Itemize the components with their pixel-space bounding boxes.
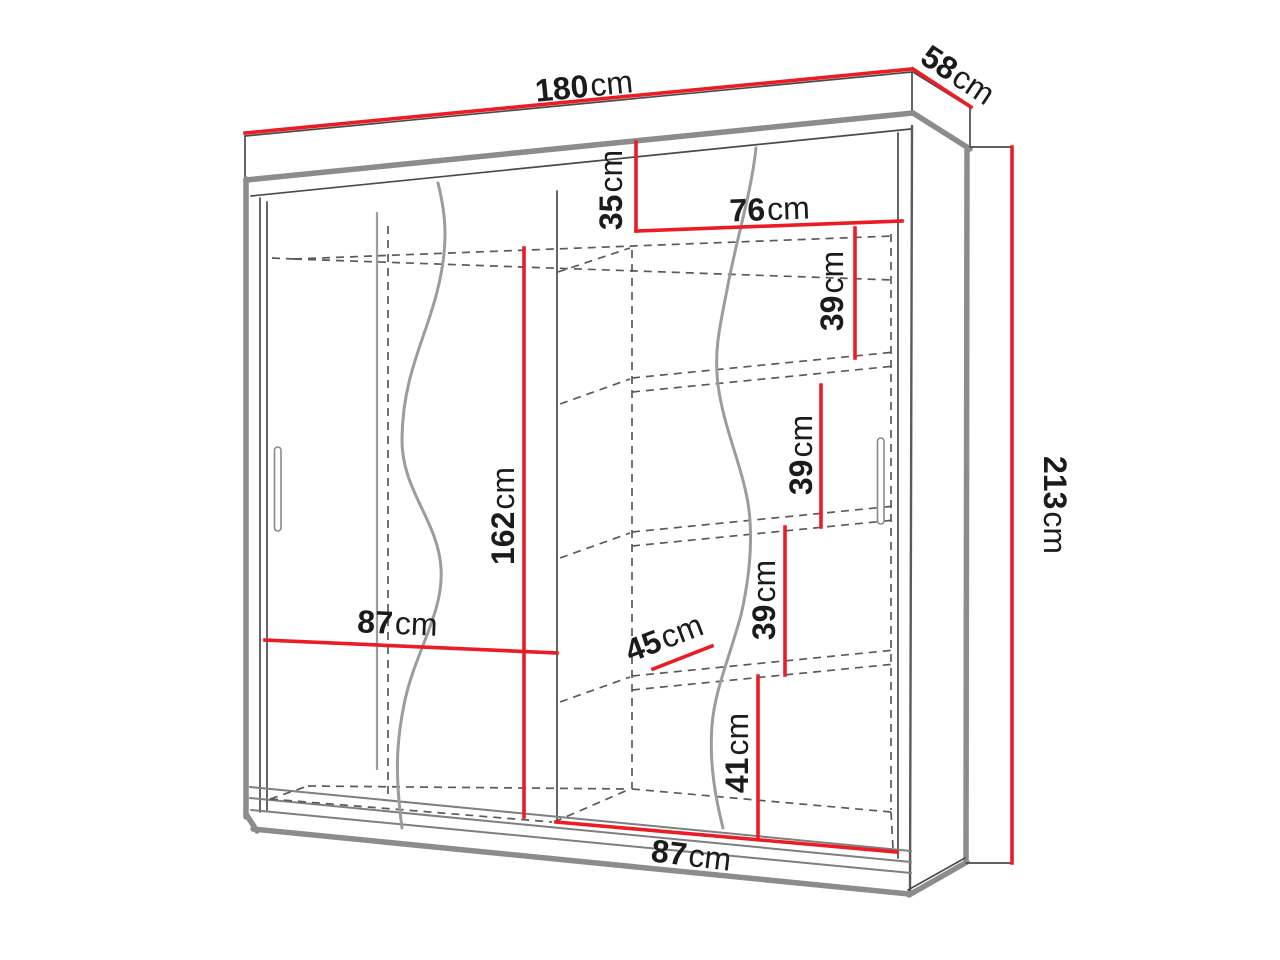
shelf3-depth-diagonal xyxy=(560,677,630,702)
dim-label-shelf-width: 76cm xyxy=(729,189,811,228)
bottom-right-edge xyxy=(908,858,965,890)
dim-label-door-left: 87cm xyxy=(357,603,439,642)
right-back-edge-shadow xyxy=(966,149,967,861)
dim-label-shelf-gap-3: 39cm xyxy=(746,560,782,640)
top-shelf-left-stub xyxy=(272,258,294,259)
shelf2-depth-diagonal xyxy=(560,533,630,558)
floor-depth-right xyxy=(891,812,893,848)
dim-label-shelf-gap-2: 39cm xyxy=(783,415,819,495)
diagram-canvas: 180cm 58cm 213cm 35cm 76cm 39cm 39cm 39c… xyxy=(0,0,1280,960)
shelf2-back-edge xyxy=(632,506,895,532)
shelf1-depth-diagonal xyxy=(560,379,630,404)
dim-label-shelf-gap-1: 39cm xyxy=(814,251,850,331)
shelf3-front-edge xyxy=(632,664,895,690)
floor-back-left xyxy=(308,786,630,789)
dim-label-bottom-gap: 41cm xyxy=(719,713,755,793)
door-top-edge xyxy=(251,129,911,196)
dim-line-door-left-87 xyxy=(265,640,557,653)
interior-hidden-lines xyxy=(270,212,895,848)
shelf2-front-edge xyxy=(632,520,895,546)
top-panel-side-shadow xyxy=(913,113,970,149)
bottom-right-shadow xyxy=(909,862,967,895)
bottom-edge-shadow xyxy=(253,829,909,894)
floor-back-right xyxy=(632,789,891,812)
right-door-handle xyxy=(878,438,885,524)
wave-strip-left-door xyxy=(397,183,445,828)
dim-label-shelf-depth: 45cm xyxy=(620,607,708,669)
top-shelf-back-edge xyxy=(294,236,893,259)
dim-label-hanging-height: 162cm xyxy=(485,467,521,565)
dim-label-height: 213cm xyxy=(1037,456,1073,554)
dim-label-top-section: 35cm xyxy=(593,150,629,230)
shelf1-front-edge xyxy=(632,366,895,392)
wardrobe-dimension-diagram: 180cm 58cm 213cm 35cm 76cm 39cm 39cm 39c… xyxy=(0,0,1280,960)
top-shelf-front-edge xyxy=(294,259,893,280)
left-door-handle xyxy=(275,447,282,531)
dim-label-width: 180cm xyxy=(533,63,634,109)
plinth-line-2 xyxy=(250,798,911,862)
right-front-corner-edge xyxy=(910,126,912,893)
top-shelf-depth-diagonal xyxy=(558,248,630,272)
